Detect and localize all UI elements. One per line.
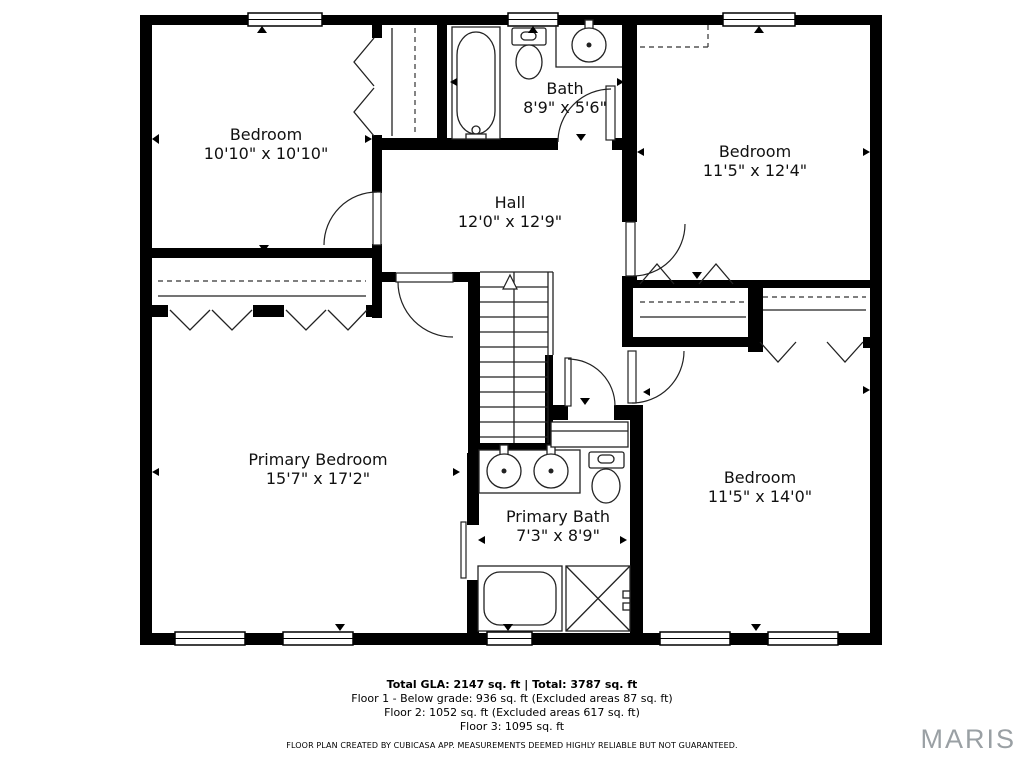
room-label-bedroom-topright-dims: 11'5" x 12'4" [703,161,807,180]
room-label-bedroom-bottomright-name: Bedroom [724,468,796,487]
door-primary-bath [565,358,615,406]
bathtub-symbol-primary [478,566,562,631]
stairs-up-arrow-icon [503,275,517,289]
room-label-hall-name: Hall [495,193,526,212]
toilet-symbol-primary [589,452,624,503]
floor3-area-line: Floor 3: 1095 sq. ft [0,720,1024,734]
windows-group [175,13,838,645]
door-bedroom-bottomright [628,351,684,403]
maris-logo: MARIS [920,724,1016,755]
room-label-bedroom-topright-name: Bedroom [719,142,791,161]
room-label-bath-name: Bath [546,79,583,98]
bathtub-symbol-top [452,27,500,139]
door-bedroom-topleft [324,192,381,245]
floor-plan-drawing: Bedroom 10'10" x 10'10" Bath 8'9" x 5'6"… [0,0,1024,768]
room-label-hall-dims: 12'0" x 12'9" [458,212,562,231]
room-label-bath-dims: 8'9" x 5'6" [523,98,607,117]
room-label-primary-bath-name: Primary Bath [506,507,610,526]
toilet-symbol-top [512,28,546,79]
room-label-primary-bath-dims: 7'3" x 8'9" [516,526,600,545]
floor2-area-line: Floor 2: 1052 sq. ft (Excluded areas 617… [0,706,1024,720]
door-bedroom-topright [626,222,685,276]
pocket-door-primary-bath [461,522,466,578]
double-vanity-symbol [479,445,580,493]
walls-group [140,15,882,645]
cubicasa-disclaimer: FLOOR PLAN CREATED BY CUBICASA APP. MEAS… [0,741,1024,751]
sink-symbol-top [556,20,622,67]
floor1-area-line: Floor 1 - Below grade: 936 sq. ft (Exclu… [0,692,1024,706]
room-label-primary-bedroom-name: Primary Bedroom [248,450,387,469]
floor-plan-page: Bedroom 10'10" x 10'10" Bath 8'9" x 5'6"… [0,0,1024,768]
room-label-bedroom-bottomright-dims: 11'5" x 14'0" [708,487,812,506]
staircase [480,272,553,443]
total-gla-line: Total GLA: 2147 sq. ft | Total: 3787 sq.… [0,678,1024,692]
room-label-bedroom-topleft-name: Bedroom [230,125,302,144]
room-label-primary-bedroom-dims: 15'7" x 17'2" [266,469,370,488]
room-label-bedroom-topleft-dims: 10'10" x 10'10" [204,144,329,163]
shower-symbol [566,566,630,631]
area-summary: Total GLA: 2147 sq. ft | Total: 3787 sq.… [0,678,1024,751]
linen-cabinet-symbol [551,422,628,447]
door-primary-bedroom [396,273,453,337]
